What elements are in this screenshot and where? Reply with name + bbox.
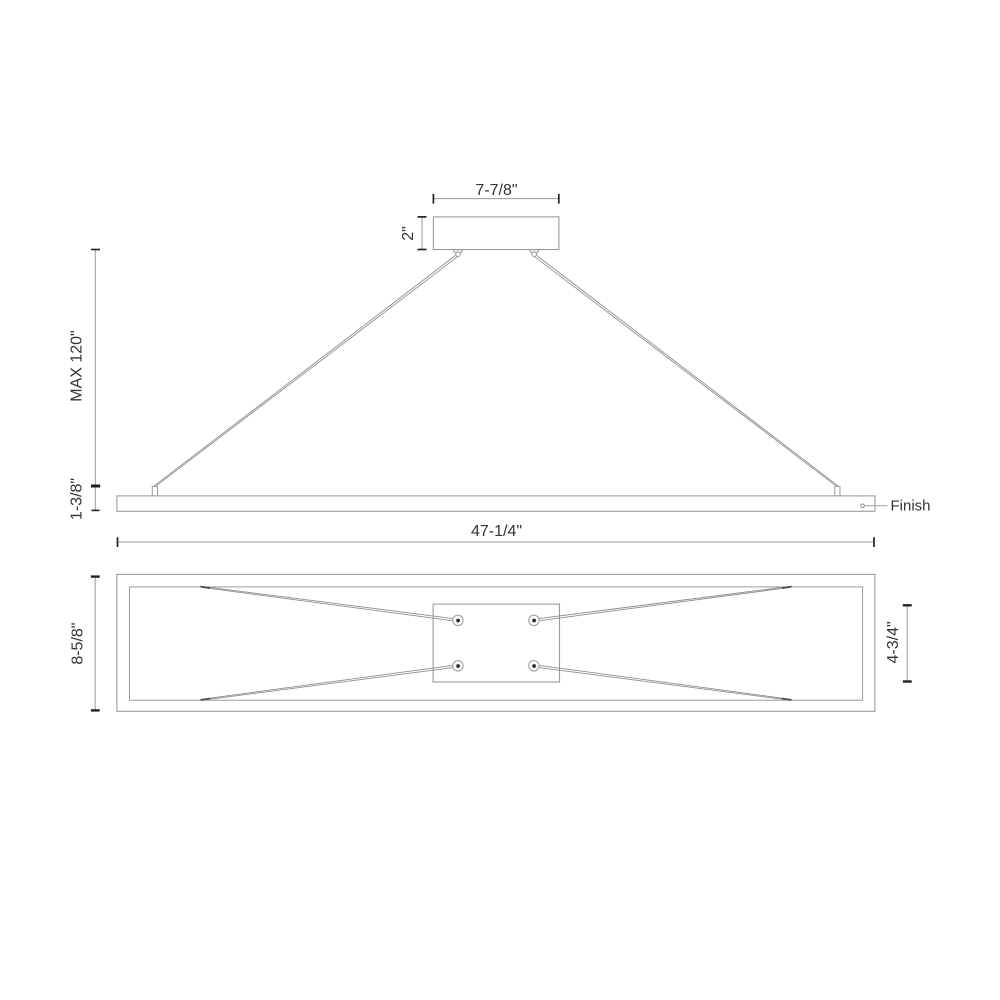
svg-text:7-7/8": 7-7/8" [475, 182, 517, 199]
svg-text:Finish: Finish [891, 498, 931, 515]
svg-text:4-3/4": 4-3/4" [885, 621, 902, 663]
svg-text:1-3/8": 1-3/8" [69, 478, 86, 520]
svg-text:2": 2" [400, 226, 417, 241]
svg-text:MAX 120": MAX 120" [69, 330, 86, 402]
svg-text:47-1/4": 47-1/4" [471, 523, 522, 540]
svg-text:8-5/8": 8-5/8" [70, 623, 87, 665]
